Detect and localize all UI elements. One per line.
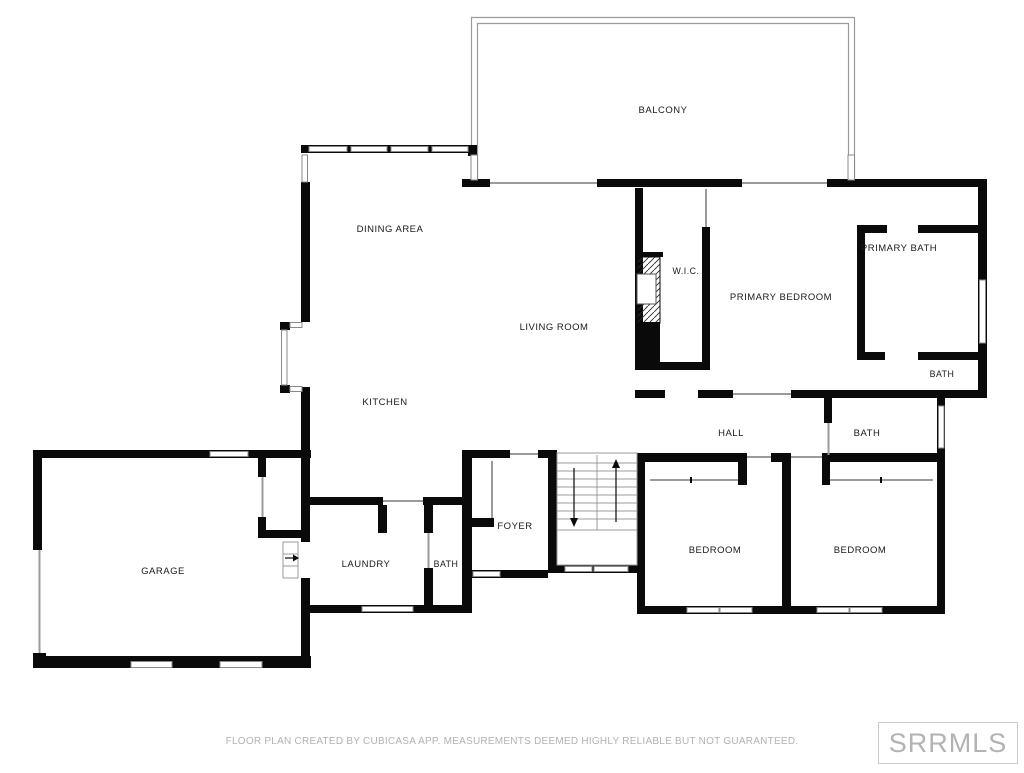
room-label-bedroom-left: BEDROOM — [689, 545, 742, 556]
room-label-bath-primary-wc: BATH — [930, 369, 955, 379]
footer-disclaimer: FLOOR PLAN CREATED BY CUBICASA APP. MEAS… — [0, 736, 1024, 747]
garage-steps — [283, 542, 298, 578]
stairs — [557, 453, 637, 565]
room-label-primary-bath: PRIMARY BATH — [861, 243, 937, 254]
srrmls-watermark: SRRMLS — [878, 722, 1018, 764]
room-label-hall: HALL — [718, 428, 744, 439]
room-label-balcony: BALCONY — [639, 105, 688, 116]
fireplace — [637, 257, 660, 323]
room-label-living-room: LIVING ROOM — [520, 322, 589, 333]
closet-sliders — [650, 477, 933, 483]
windows — [131, 147, 986, 668]
garage-steps-right-arrow-icon — [285, 555, 299, 562]
room-label-garage: GARAGE — [141, 566, 185, 577]
stairs-up-arrow-icon — [612, 459, 620, 522]
room-label-kitchen: KITCHEN — [362, 397, 407, 408]
srrmls-watermark-text: SRRMLS — [889, 730, 1008, 757]
room-label-wic: W.I.C. — [673, 266, 700, 276]
floor-plan-svg: BALCONY DINING AREA PRIMARY BATH W.I.C. … — [0, 0, 1024, 768]
balcony-outline — [472, 18, 855, 182]
opening-lines — [39, 182, 830, 653]
walls — [33, 145, 987, 668]
room-label-foyer: FOYER — [497, 521, 532, 532]
stairs-down-arrow-icon — [570, 468, 578, 527]
room-label-bedroom-right: BEDROOM — [834, 545, 887, 556]
floor-plan: BALCONY DINING AREA PRIMARY BATH W.I.C. … — [0, 0, 1024, 768]
room-label-bath-hall: BATH — [854, 428, 881, 439]
room-label-laundry: LAUNDRY — [342, 559, 391, 570]
room-label-bath-laundry: BATH — [434, 559, 459, 569]
room-label-primary-bedroom: PRIMARY BEDROOM — [730, 292, 832, 303]
room-label-dining-area: DINING AREA — [357, 224, 424, 235]
